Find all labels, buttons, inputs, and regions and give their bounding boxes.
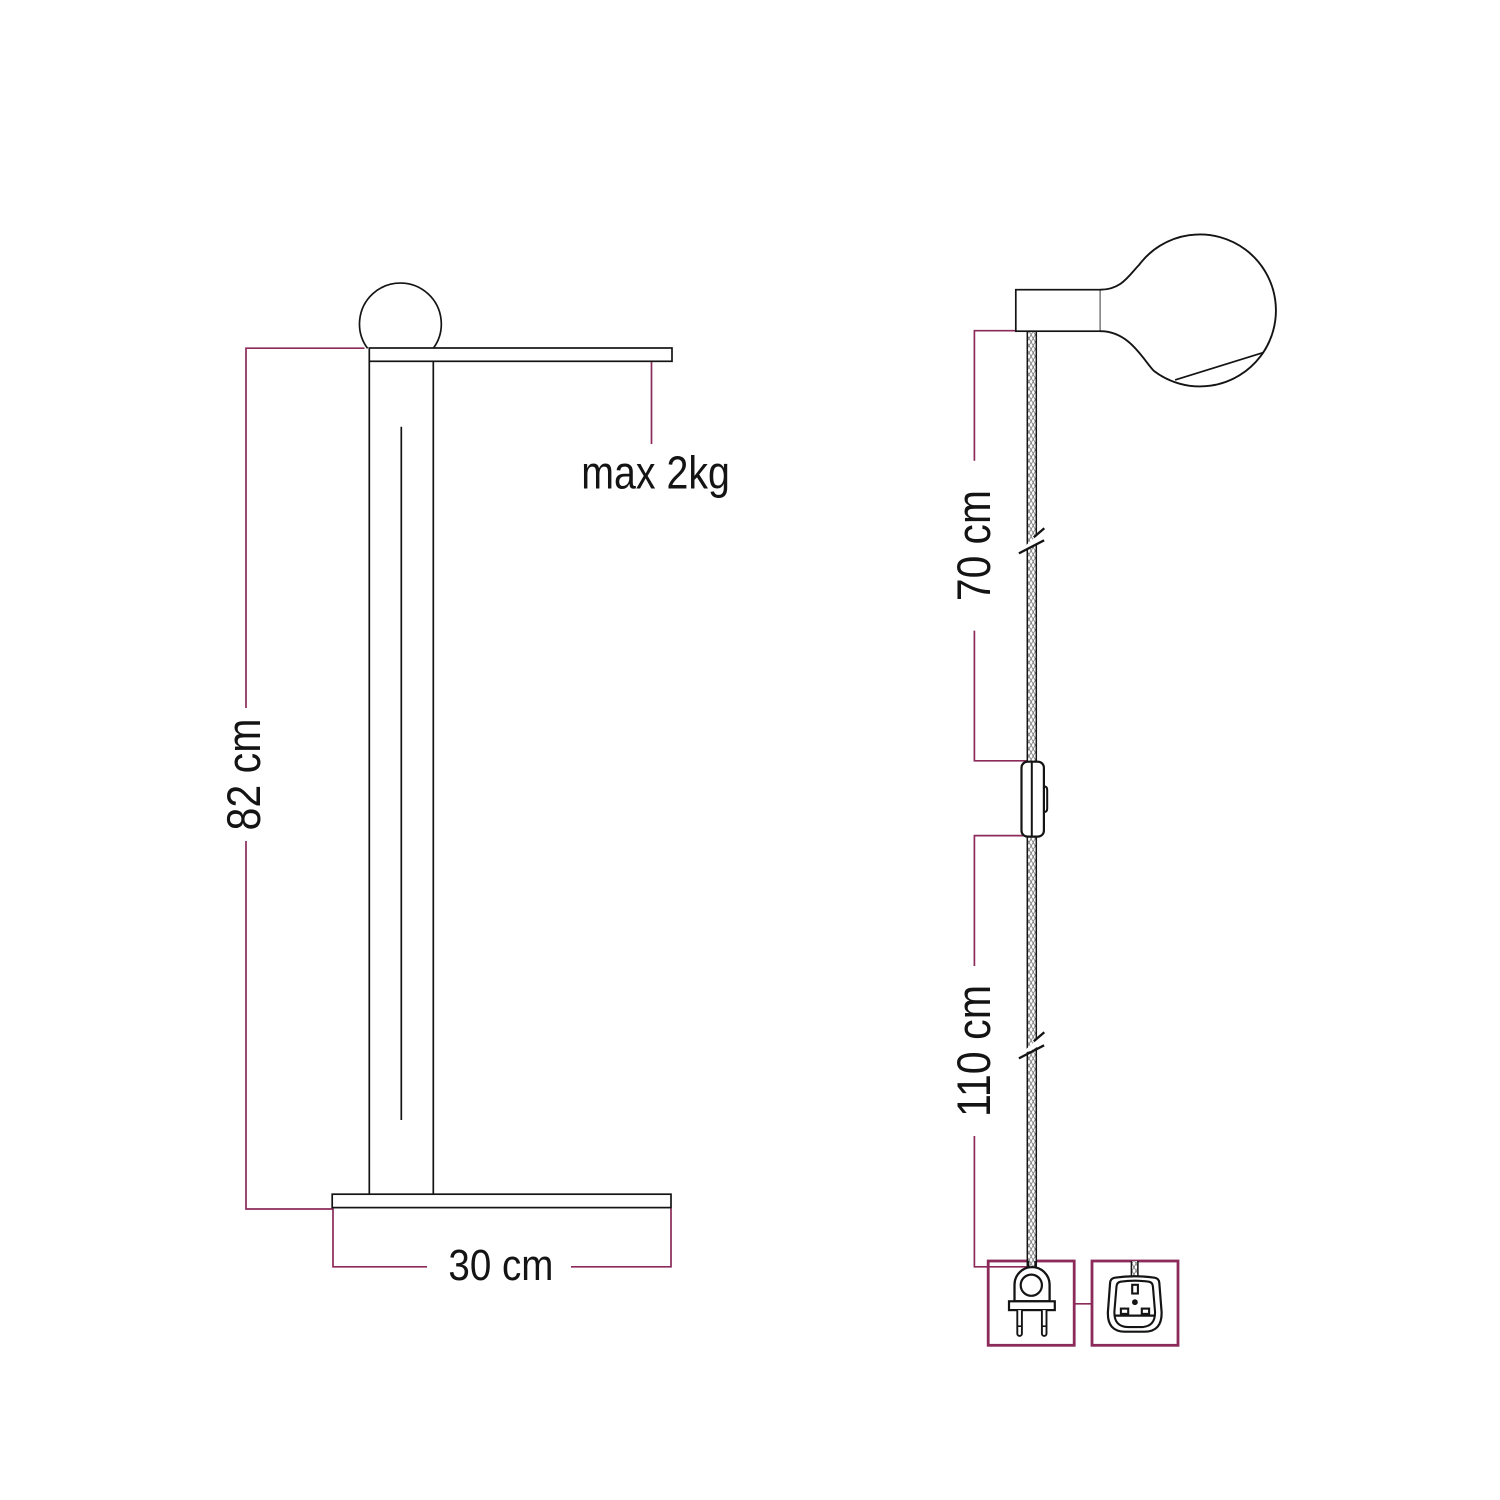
svg-text:max 2kg: max 2kg [581,446,730,498]
svg-text:110 cm: 110 cm [947,985,1000,1117]
svg-text:70 cm: 70 cm [947,490,1000,601]
svg-text:30 cm: 30 cm [448,1241,553,1290]
svg-text:82 cm: 82 cm [217,719,270,831]
